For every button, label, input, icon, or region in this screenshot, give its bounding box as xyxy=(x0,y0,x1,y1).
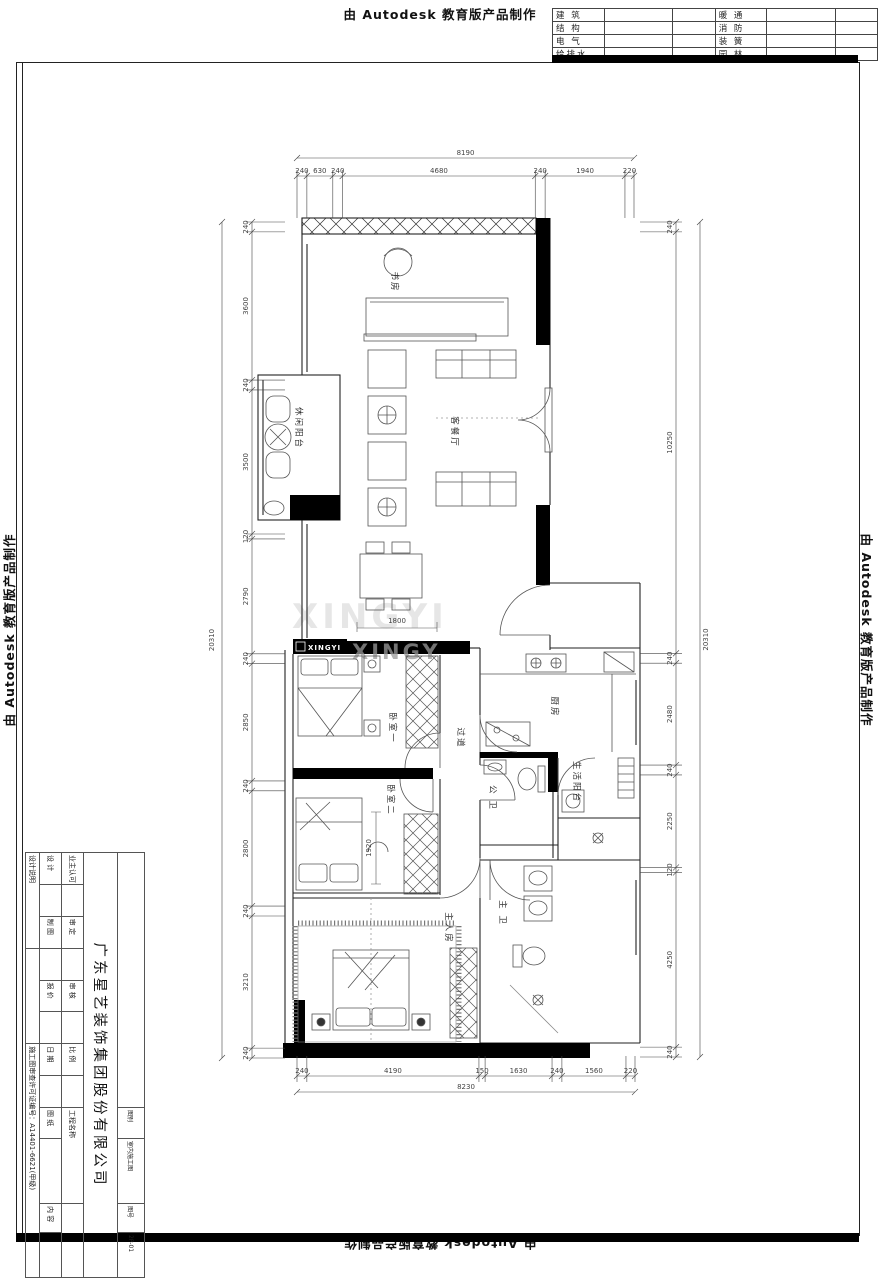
floor-plan-svg: XINGYI xyxy=(0,0,878,1254)
dim-label: 1630 xyxy=(510,1067,528,1075)
dim-label: 240 xyxy=(666,763,674,776)
bathroom-sink xyxy=(524,866,552,891)
xingyi-badge-text: XINGYI xyxy=(308,644,341,652)
dim-label: 240 xyxy=(242,652,250,665)
dim-label: 240 xyxy=(242,904,250,917)
study-desk xyxy=(366,298,508,336)
balcony-chair xyxy=(266,396,290,422)
sofa xyxy=(436,350,516,378)
drying-rack xyxy=(618,758,634,798)
bed xyxy=(298,656,362,736)
dim-label: 240 xyxy=(295,167,308,175)
wardrobe xyxy=(450,948,477,1038)
toilet xyxy=(518,768,536,790)
dim-label: 630 xyxy=(313,167,326,175)
room-label-master-bedroom: 主人房 xyxy=(443,912,454,944)
dim-label: 4190 xyxy=(384,1067,402,1075)
dim-label: 2790 xyxy=(242,587,250,605)
bathroom-sink xyxy=(484,760,506,774)
dim-label: 240 xyxy=(242,220,250,233)
dim-label: 1940 xyxy=(576,167,594,175)
room-label-master-bath: 主 卫 xyxy=(497,900,508,926)
dim-label: 150 xyxy=(475,1067,488,1075)
dim-total-label: 20310 xyxy=(702,628,710,650)
dim-label: 3210 xyxy=(242,973,250,991)
room-label-leisure-balcony: 休闲阳台 xyxy=(293,407,304,449)
dim-label: 220 xyxy=(624,1067,637,1075)
room-label-bedroom1: 卧室一 xyxy=(387,712,398,744)
sofa xyxy=(436,472,516,506)
dim-total-label: 8190 xyxy=(457,149,475,157)
dim-label: 240 xyxy=(242,378,250,391)
room-label-kitchen: 厨房 xyxy=(549,696,560,717)
wardrobe xyxy=(404,814,438,894)
dim-total-label: 20310 xyxy=(208,629,216,651)
dim-label: 1560 xyxy=(585,1067,603,1075)
dim-label: 240 xyxy=(331,167,344,175)
wardrobe xyxy=(406,656,438,748)
room-label-guest-bath: 公 卫 xyxy=(487,785,497,811)
dim-label: 4250 xyxy=(666,951,674,969)
dim-label: 3600 xyxy=(242,297,250,315)
room-label-living-dining: 客餐厅 xyxy=(449,416,460,448)
room-label-corridor: 过道 xyxy=(455,727,466,748)
dim-label: 120 xyxy=(666,863,674,876)
dim-label: 1920 xyxy=(365,839,373,857)
dining-table xyxy=(360,554,422,598)
dim-label: 240 xyxy=(550,1067,563,1075)
dim-label: 4680 xyxy=(430,167,448,175)
dim-label: 240 xyxy=(242,779,250,792)
dim-label: 3500 xyxy=(242,453,250,471)
walls-solid xyxy=(283,218,590,1058)
bed xyxy=(296,798,362,890)
dim-label: 240 xyxy=(242,1046,250,1059)
dim-total-label: 8230 xyxy=(457,1083,475,1091)
dim-label: 2800 xyxy=(242,840,250,858)
balcony-chair xyxy=(266,452,290,478)
dim-label: 2250 xyxy=(666,812,674,830)
toilet xyxy=(523,947,545,965)
dim-label: 120 xyxy=(242,530,250,543)
dim-label: 10250 xyxy=(666,431,674,453)
room-label-bedroom2: 卧室二 xyxy=(385,784,396,816)
xingyi-ghost-watermark: XINGYI xyxy=(292,597,448,637)
dim-label: 220 xyxy=(623,167,636,175)
dim-label: 240 xyxy=(666,220,674,233)
room-label-service-balcony: 生活阳台 xyxy=(571,761,582,803)
dim-label: 240 xyxy=(533,167,546,175)
dim-label: 240 xyxy=(295,1067,308,1075)
dim-label: 240 xyxy=(666,652,674,665)
room-label-study: 书房 xyxy=(389,271,400,292)
dim-label: 2480 xyxy=(666,705,674,723)
dim-label: 1800 xyxy=(388,617,406,625)
dim-label: 240 xyxy=(666,1045,674,1058)
dim-label: 2850 xyxy=(242,713,250,731)
